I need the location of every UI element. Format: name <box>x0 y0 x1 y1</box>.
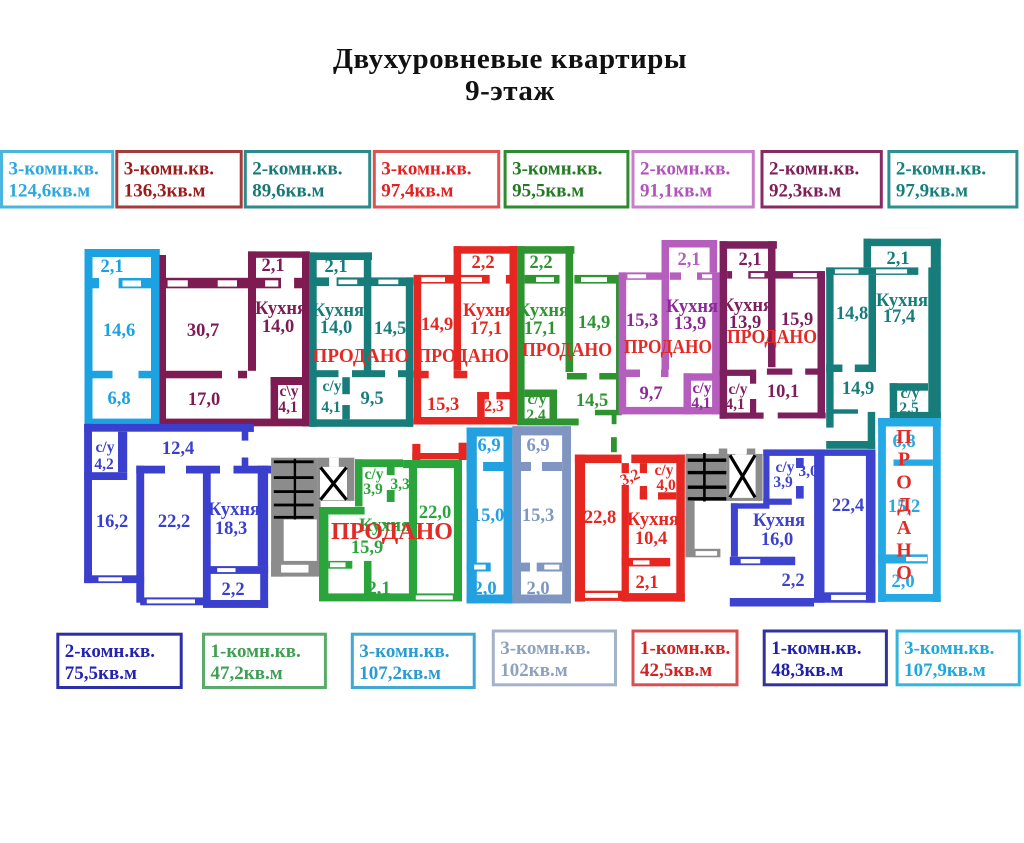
svg-text:97,9кв.м: 97,9кв.м <box>896 181 968 202</box>
svg-text:Кухня: Кухня <box>627 510 679 530</box>
svg-text:92,3кв.м: 92,3кв.м <box>769 181 841 202</box>
svg-text:ПРОДАНО: ПРОДАНО <box>313 345 410 367</box>
svg-text:Кухня: Кухня <box>208 500 260 520</box>
svg-text:4,2: 4,2 <box>94 456 114 473</box>
svg-text:Н: Н <box>896 540 912 562</box>
svg-text:97,4кв.м: 97,4кв.м <box>381 181 453 202</box>
svg-text:6,8: 6,8 <box>107 389 130 409</box>
svg-text:75,5кв.м: 75,5кв.м <box>65 663 137 684</box>
svg-text:2,1: 2,1 <box>367 579 390 599</box>
svg-text:с\у: с\у <box>280 383 299 400</box>
svg-text:3-комн.кв.: 3-комн.кв. <box>9 159 99 180</box>
svg-text:14,5: 14,5 <box>576 391 608 411</box>
svg-text:14,9: 14,9 <box>578 313 610 333</box>
svg-text:3-комн.кв.: 3-комн.кв. <box>381 159 471 180</box>
svg-text:15,0: 15,0 <box>472 506 504 526</box>
svg-text:15,3: 15,3 <box>522 506 554 526</box>
svg-text:3-комн.кв.: 3-комн.кв. <box>359 641 449 662</box>
svg-text:107,9кв.м: 107,9кв.м <box>904 660 986 681</box>
svg-text:2,0: 2,0 <box>526 579 549 599</box>
svg-text:2,2: 2,2 <box>471 253 494 273</box>
svg-text:2,5: 2,5 <box>899 400 919 417</box>
svg-text:ПРОДАНО: ПРОДАНО <box>331 519 453 545</box>
svg-text:17,1: 17,1 <box>524 319 556 339</box>
svg-text:22,2: 22,2 <box>158 512 190 532</box>
svg-text:6,9: 6,9 <box>477 436 500 456</box>
svg-text:ПРОДАНО: ПРОДАНО <box>522 339 612 361</box>
svg-text:14,9: 14,9 <box>421 315 453 335</box>
svg-text:2,4: 2,4 <box>526 407 546 424</box>
svg-text:15,3: 15,3 <box>626 311 658 331</box>
svg-text:107,2кв.м: 107,2кв.м <box>359 663 441 684</box>
svg-text:4,1: 4,1 <box>725 396 744 413</box>
svg-text:2,1: 2,1 <box>261 256 284 276</box>
svg-text:14,8: 14,8 <box>836 304 868 324</box>
svg-text:3,0: 3,0 <box>798 463 818 480</box>
svg-text:91,1кв.м: 91,1кв.м <box>640 181 712 202</box>
svg-text:1-комн.кв.: 1-комн.кв. <box>771 638 861 659</box>
svg-text:2,0: 2,0 <box>473 579 496 599</box>
svg-text:17,0: 17,0 <box>188 390 220 410</box>
svg-text:42,5кв.м: 42,5кв.м <box>640 660 712 681</box>
svg-text:12,4: 12,4 <box>162 439 194 459</box>
svg-text:17,1: 17,1 <box>470 319 502 339</box>
svg-text:2,2: 2,2 <box>221 580 244 600</box>
svg-text:Двухуровневые квартиры: Двухуровневые квартиры <box>333 43 687 75</box>
svg-text:2-комн.кв.: 2-комн.кв. <box>252 159 342 180</box>
svg-text:О: О <box>896 471 912 493</box>
svg-text:89,6кв.м: 89,6кв.м <box>252 181 324 202</box>
svg-text:2,1: 2,1 <box>100 257 123 277</box>
svg-text:18,3: 18,3 <box>215 519 247 539</box>
svg-text:2-комн.кв.: 2-комн.кв. <box>769 159 859 180</box>
svg-text:3,9: 3,9 <box>773 474 793 491</box>
svg-text:Кухня: Кухня <box>753 511 805 531</box>
svg-text:136,3кв.м: 136,3кв.м <box>124 181 206 202</box>
svg-text:Кухня: Кухня <box>255 299 307 319</box>
svg-text:14,9: 14,9 <box>842 379 874 399</box>
svg-text:15,3: 15,3 <box>427 395 459 415</box>
svg-text:22,8: 22,8 <box>584 508 616 528</box>
svg-text:13,9: 13,9 <box>674 314 706 334</box>
svg-text:95,5кв.м: 95,5кв.м <box>512 181 584 202</box>
svg-text:с/у: с/у <box>96 439 115 456</box>
svg-text:с/у: с/у <box>323 378 342 395</box>
svg-text:48,3кв.м: 48,3кв.м <box>771 660 843 681</box>
svg-text:Кухня: Кухня <box>463 301 515 321</box>
svg-text:22,4: 22,4 <box>832 496 864 516</box>
svg-text:14,0: 14,0 <box>262 317 294 337</box>
svg-text:Р: Р <box>898 449 910 471</box>
svg-text:17,4: 17,4 <box>883 307 915 327</box>
svg-text:Д: Д <box>897 494 911 516</box>
svg-text:А: А <box>897 517 912 539</box>
svg-text:14,0: 14,0 <box>320 318 352 338</box>
svg-text:47,2кв.м: 47,2кв.м <box>211 663 283 684</box>
svg-text:4,1: 4,1 <box>691 395 710 412</box>
svg-text:ПРОДАНО: ПРОДАНО <box>417 345 509 367</box>
svg-text:9,7: 9,7 <box>639 384 662 404</box>
svg-text:2,1: 2,1 <box>886 249 909 269</box>
svg-text:3-комн.кв.: 3-комн.кв. <box>124 159 214 180</box>
svg-text:П: П <box>896 426 912 448</box>
svg-text:9,5: 9,5 <box>360 389 383 409</box>
svg-text:3-комн.кв.: 3-комн.кв. <box>512 159 602 180</box>
svg-text:2,1: 2,1 <box>324 257 347 277</box>
svg-text:30,7: 30,7 <box>187 321 219 341</box>
svg-text:16,0: 16,0 <box>761 530 793 550</box>
svg-text:Кухня: Кухня <box>517 301 569 321</box>
svg-text:6,9: 6,9 <box>526 436 549 456</box>
svg-text:2-комн.кв.: 2-комн.кв. <box>640 159 730 180</box>
svg-text:4,0: 4,0 <box>656 477 676 494</box>
svg-text:4,1: 4,1 <box>321 399 340 416</box>
svg-text:ПРОДАНО: ПРОДАНО <box>727 326 817 348</box>
svg-text:2,1: 2,1 <box>738 250 761 270</box>
svg-text:2,1: 2,1 <box>677 250 700 270</box>
svg-text:2-комн.кв.: 2-комн.кв. <box>896 159 986 180</box>
svg-text:9-этаж: 9-этаж <box>465 75 555 107</box>
svg-text:О: О <box>896 562 912 584</box>
svg-text:с/у: с/у <box>528 391 547 408</box>
svg-text:2-комн.кв.: 2-комн.кв. <box>65 641 155 662</box>
svg-text:124,6кв.м: 124,6кв.м <box>9 181 91 202</box>
svg-text:10,1: 10,1 <box>767 382 799 402</box>
svg-text:1-комн.кв.: 1-комн.кв. <box>640 638 730 659</box>
svg-text:16,2: 16,2 <box>96 512 128 532</box>
svg-text:14,5: 14,5 <box>374 319 406 339</box>
svg-text:3-комн.кв.: 3-комн.кв. <box>500 638 590 659</box>
svg-text:2,3: 2,3 <box>484 398 504 415</box>
svg-text:4,1: 4,1 <box>278 399 297 416</box>
svg-text:102кв.м: 102кв.м <box>500 660 567 681</box>
svg-text:1-комн.кв.: 1-комн.кв. <box>211 641 301 662</box>
svg-text:2,1: 2,1 <box>635 573 658 593</box>
svg-text:3,3: 3,3 <box>390 476 410 493</box>
svg-text:3-комн.кв.: 3-комн.кв. <box>904 638 994 659</box>
svg-text:10,4: 10,4 <box>635 529 667 549</box>
svg-text:2,2: 2,2 <box>781 571 804 591</box>
svg-text:3,9: 3,9 <box>363 481 383 498</box>
svg-text:14,6: 14,6 <box>103 321 135 341</box>
svg-text:2,2: 2,2 <box>529 253 552 273</box>
svg-text:ПРОДАНО: ПРОДАНО <box>624 336 712 358</box>
